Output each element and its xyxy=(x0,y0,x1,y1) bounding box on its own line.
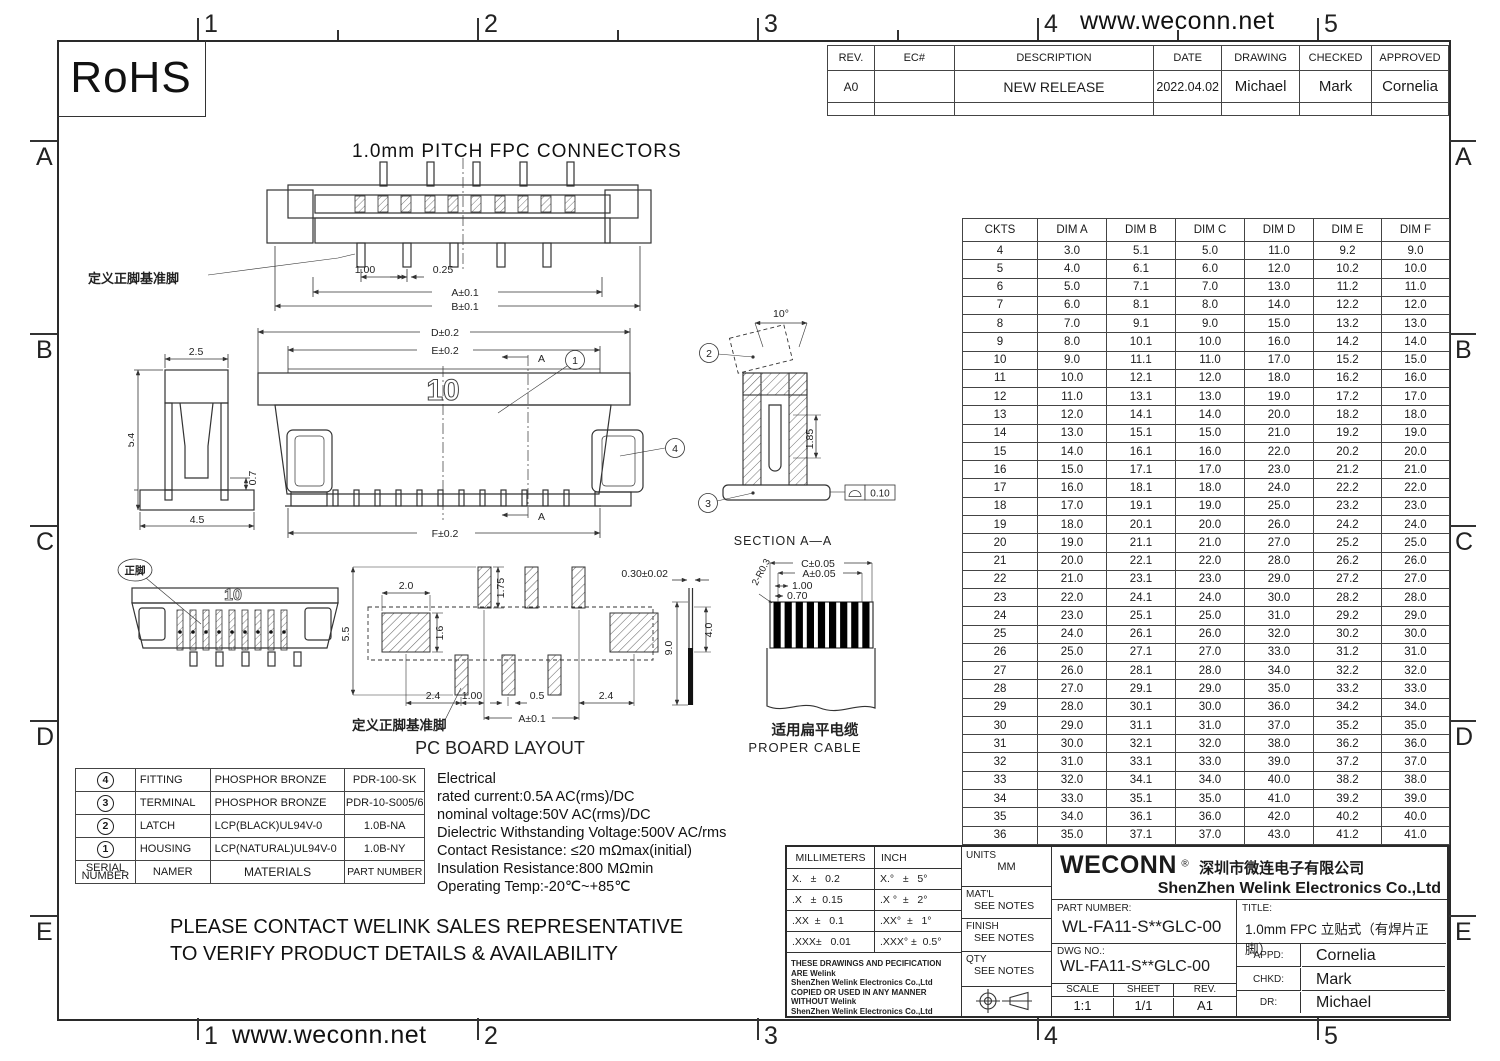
dimension-row: 12 11.0 13.1 13.0 19.0 17.2 17.0 xyxy=(963,388,1450,406)
dim-e-cell: 21.2 xyxy=(1314,461,1382,479)
section-caption: SECTION A—A xyxy=(734,534,833,548)
dim-a-cell: 23.0 xyxy=(1038,607,1107,625)
ckts-cell: 6 xyxy=(963,278,1038,296)
dim-c-cell: 12.0 xyxy=(1176,369,1245,387)
units-value: MM xyxy=(962,861,1051,873)
dim-c-cell: 33.0 xyxy=(1176,753,1245,771)
units-label: UNITS xyxy=(962,847,1051,861)
dim-e-cell: 24.2 xyxy=(1314,515,1382,533)
dim-e-cell: 27.2 xyxy=(1314,570,1382,588)
rohs-label: RoHS xyxy=(70,53,191,103)
dim-c-cell: 27.0 xyxy=(1176,643,1245,661)
ckts-cell: 5 xyxy=(963,260,1038,278)
zone-tick xyxy=(30,140,57,142)
sales-note-line1: PLEASE CONTACT WELINK SALES REPRESENTATI… xyxy=(170,914,683,941)
dim-b-cell: 8.1 xyxy=(1107,296,1176,314)
dim-a: A±0.1 xyxy=(451,287,479,299)
zone-letter-right-c: C xyxy=(1455,528,1473,557)
dim-d-cell: 37.0 xyxy=(1245,716,1314,734)
revision-table: REV.EC#DESCRIPTIONDATEDRAWINGCHECKEDAPPR… xyxy=(827,45,1449,116)
cable-caption-cn: 适用扁平电缆 xyxy=(772,721,859,739)
tolerance-inch-0: X.° ± 5° xyxy=(875,869,961,890)
side-view-dimensions xyxy=(134,354,254,530)
dim-a-cell: 20.0 xyxy=(1038,552,1107,570)
dim-a-cell: 5.0 xyxy=(1038,278,1107,296)
dim-a-cell: 18.0 xyxy=(1038,515,1107,533)
dim-f-cell: 28.0 xyxy=(1382,589,1450,607)
dimension-table: CKTSDIM ADIM BDIM CDIM DDIM EDIM F 4 3.0… xyxy=(962,218,1450,845)
chkd-value: Mark xyxy=(1302,968,1445,991)
dwg-scale-block: DWG NO.: WL-FA11-S**GLC-00 SCALE SHEET R… xyxy=(1052,944,1237,1016)
ckts-cell: 16 xyxy=(963,461,1038,479)
dim-side-width: 2.5 xyxy=(189,346,204,358)
dimension-row: 36 35.0 37.1 37.0 43.0 41.2 41.0 xyxy=(963,826,1450,845)
dim-b-cell: 27.1 xyxy=(1107,643,1176,661)
revision-header-cell: CHECKED xyxy=(1300,46,1372,71)
dimension-row: 13 12.0 14.1 14.0 20.0 18.2 18.0 xyxy=(963,406,1450,424)
sales-note: PLEASE CONTACT WELINK SALES REPRESENTATI… xyxy=(170,914,683,968)
ckts-cell: 13 xyxy=(963,406,1038,424)
flatness-value: 0.10 xyxy=(870,489,890,500)
dim-b-cell: 26.1 xyxy=(1107,625,1176,643)
zone-tick xyxy=(1449,720,1476,722)
third-angle-projection-icon xyxy=(974,988,1038,1015)
qty-cell: QTY SEE NOTES xyxy=(962,952,1051,987)
dim-c-cell: 29.0 xyxy=(1176,680,1245,698)
zone-letter-right-a: A xyxy=(1455,143,1472,172)
dr-label: DR: xyxy=(1237,992,1301,1013)
dim-e-cell: 41.2 xyxy=(1314,826,1382,845)
dim-pitch: 1.00 xyxy=(355,264,376,276)
ckts-cell: 4 xyxy=(963,242,1038,260)
dim-cable-length: 9.0 xyxy=(663,641,675,656)
dim-b-cell: 28.1 xyxy=(1107,662,1176,680)
dim-c-cell: 23.0 xyxy=(1176,570,1245,588)
dim-a-cell: 8.0 xyxy=(1038,333,1107,351)
dim-b-cell: 6.1 xyxy=(1107,260,1176,278)
dim-f-cell: 39.0 xyxy=(1382,789,1450,807)
pcb-caption: PC BOARD LAYOUT xyxy=(415,738,585,758)
material-part: 1.0B-NY xyxy=(345,838,425,861)
dim-b-cell: 36.1 xyxy=(1107,808,1176,826)
dim-e-cell: 33.2 xyxy=(1314,680,1382,698)
company-name-en: ShenZhen Welink Electronics Co.,Ltd xyxy=(1052,880,1447,898)
dim-f-cell: 32.0 xyxy=(1382,662,1450,680)
dimension-row: 32 31.0 33.1 33.0 39.0 37.2 37.0 xyxy=(963,753,1450,771)
website-url-top: www.weconn.net xyxy=(1080,7,1275,36)
dim-f-cell: 20.0 xyxy=(1382,442,1450,460)
appd-label: APPD: xyxy=(1237,944,1301,967)
dim-f-cell: 21.0 xyxy=(1382,461,1450,479)
ckts-cell: 8 xyxy=(963,315,1038,333)
revision-header-cell: REV. xyxy=(828,46,875,71)
dimension-row: 8 7.0 9.1 9.0 15.0 13.2 13.0 xyxy=(963,315,1450,333)
dim-pad-top: 1.75 xyxy=(495,578,507,599)
dimension-table-body: 4 3.0 5.1 5.0 11.0 9.2 9.0 5 4.0 6.1 6.0… xyxy=(963,242,1450,845)
dim-c-cell: 32.0 xyxy=(1176,735,1245,753)
dim-b-cell: 31.1 xyxy=(1107,716,1176,734)
dim-pcb-height: 5.5 xyxy=(340,627,352,642)
dim-c-cell: 24.0 xyxy=(1176,589,1245,607)
dim-a-cell: 24.0 xyxy=(1038,625,1107,643)
ckts-cell: 19 xyxy=(963,515,1038,533)
dim-d-cell: 29.0 xyxy=(1245,570,1314,588)
dim-b-cell: 32.1 xyxy=(1107,735,1176,753)
electrical-line: Insulation Resistance:800 MΩmin xyxy=(437,860,726,878)
dim-b: B±0.1 xyxy=(451,301,479,313)
dim-c-cell: 36.0 xyxy=(1176,808,1245,826)
dim-e-cell: 28.2 xyxy=(1314,589,1382,607)
ckts-cell: 17 xyxy=(963,479,1038,497)
dimension-row: 21 20.0 22.1 22.0 28.0 26.2 26.0 xyxy=(963,552,1450,570)
ckts-cell: 11 xyxy=(963,369,1038,387)
title-block: MILLIMETERS INCH X. ± 0.2 X.° ± 5° .X ± … xyxy=(785,845,1449,1018)
dimension-header-cell: CKTS xyxy=(963,219,1038,242)
dim-b-cell: 23.1 xyxy=(1107,570,1176,588)
ec-value xyxy=(874,71,954,103)
dimension-row: 33 32.0 34.1 34.0 40.0 38.2 38.0 xyxy=(963,771,1450,789)
dim-d-cell: 13.0 xyxy=(1245,278,1314,296)
dim-a-cell: 19.0 xyxy=(1038,534,1107,552)
date-value: 2022.04.02 xyxy=(1154,71,1222,103)
view-top-elevation: 1.00 0.25 A±0.1 B±0.1 定义正脚基准脚 xyxy=(80,158,680,320)
dim-d-cell: 43.0 xyxy=(1245,826,1314,845)
dim-b-cell: 24.1 xyxy=(1107,589,1176,607)
dim-d-cell: 12.0 xyxy=(1245,260,1314,278)
dimension-row: 28 27.0 29.1 29.0 35.0 33.2 33.0 xyxy=(963,680,1450,698)
revision-header-cell: APPROVED xyxy=(1372,46,1449,71)
dim-exposure: 4.0 xyxy=(703,623,715,638)
ckts-cell: 25 xyxy=(963,625,1038,643)
dimension-row: 30 29.0 31.1 31.0 37.0 35.2 35.0 xyxy=(963,716,1450,734)
dimension-row: 11 10.0 12.1 12.0 18.0 16.2 16.0 xyxy=(963,369,1450,387)
tolerance-mm-3: .XXX± 0.01 xyxy=(787,932,875,953)
zone-number-bottom-4: 4 xyxy=(1044,1022,1058,1051)
dim-left-span: 2.4 xyxy=(426,690,441,702)
dim-b-cell: 29.1 xyxy=(1107,680,1176,698)
material-name: FITTING xyxy=(135,769,210,792)
zone-tick xyxy=(1449,333,1476,335)
dim-cable-a: A±0.05 xyxy=(802,568,835,580)
dimension-row: 19 18.0 20.1 20.0 26.0 24.2 24.0 xyxy=(963,515,1450,533)
dim-d-cell: 38.0 xyxy=(1245,735,1314,753)
dwg-no-label: DWG NO.: xyxy=(1052,944,1236,957)
dim-a-cell: 30.0 xyxy=(1038,735,1107,753)
zone-tick xyxy=(1449,140,1476,142)
dim-a-cell: 28.0 xyxy=(1038,698,1107,716)
dim-c-cell: 9.0 xyxy=(1176,315,1245,333)
sheet-label: SHEET xyxy=(1114,983,1174,997)
dim-c-cell: 13.0 xyxy=(1176,388,1245,406)
description-value: NEW RELEASE xyxy=(954,71,1154,103)
zone-halftick xyxy=(617,30,619,40)
zone-tick xyxy=(1317,18,1319,40)
dim-a-cell: 35.0 xyxy=(1038,826,1107,845)
scale-label: SCALE xyxy=(1052,983,1114,997)
connector-top-outline xyxy=(267,162,651,267)
ckts-cell: 23 xyxy=(963,589,1038,607)
ckts-cell: 29 xyxy=(963,698,1038,716)
dim-c-cell: 21.0 xyxy=(1176,534,1245,552)
dim-b-cell: 7.1 xyxy=(1107,278,1176,296)
dim-e-cell: 15.2 xyxy=(1314,351,1382,369)
dim-c-cell: 5.0 xyxy=(1176,242,1245,260)
zone-tick xyxy=(197,1018,199,1040)
dimension-row: 23 22.0 24.1 24.0 30.0 28.2 28.0 xyxy=(963,589,1450,607)
materials-table: 4 FITTING PHOSPHOR BRONZE PDR-100-SK 3 T… xyxy=(75,768,425,884)
dim-f-cell: 40.0 xyxy=(1382,808,1450,826)
dim-a-cell: 25.0 xyxy=(1038,643,1107,661)
dim-c-cell: 14.0 xyxy=(1176,406,1245,424)
approved-value: Cornelia xyxy=(1372,71,1449,103)
dim-b-cell: 10.1 xyxy=(1107,333,1176,351)
dim-d-cell: 32.0 xyxy=(1245,625,1314,643)
tolerance-header-mm: MILLIMETERS xyxy=(787,847,875,869)
view-iso: 10 正脚 xyxy=(113,548,368,738)
dimension-row: 5 4.0 6.1 6.0 12.0 10.2 10.0 xyxy=(963,260,1450,278)
dim-e-cell: 29.2 xyxy=(1314,607,1382,625)
dim-f-cell: 24.0 xyxy=(1382,515,1450,533)
zone-tick xyxy=(1037,18,1039,40)
dim-d: D±0.2 xyxy=(431,327,459,339)
dim-f-cell: 15.0 xyxy=(1382,351,1450,369)
company-panel: WECONN ® 深圳市微连电子有限公司 ShenZhen Welink Ele… xyxy=(1052,847,1447,1016)
svg-text:4: 4 xyxy=(672,443,678,455)
material-row-terminal: 3 TERMINAL PHOSPHOR BRONZE PDR-10-S005/6 xyxy=(76,792,425,815)
dim-c-cell: 7.0 xyxy=(1176,278,1245,296)
dim-b-cell: 33.1 xyxy=(1107,753,1176,771)
dim-e-cell: 17.2 xyxy=(1314,388,1382,406)
dim-a-cell: 9.0 xyxy=(1038,351,1107,369)
material-row-latch: 2 LATCH LCP(BLACK)UL94V-0 1.0B-NA xyxy=(76,815,425,838)
rev-value: A0 xyxy=(828,71,875,103)
dim-pad-width: 2.0 xyxy=(399,580,414,592)
dimension-row: 25 24.0 26.1 26.0 32.0 30.2 30.0 xyxy=(963,625,1450,643)
dim-d-cell: 27.0 xyxy=(1245,534,1314,552)
dim-b-cell: 12.1 xyxy=(1107,369,1176,387)
dim-d-cell: 42.0 xyxy=(1245,808,1314,826)
tolerance-mm-1: .X ± 0.15 xyxy=(787,890,875,911)
svg-text:3: 3 xyxy=(705,498,711,510)
legal-text: THESE DRAWINGS AND PECIFICATION ARE Weli… xyxy=(791,959,959,1016)
material-row-fitting: 4 FITTING PHOSPHOR BRONZE PDR-100-SK xyxy=(76,769,425,792)
dim-c-cell: 37.0 xyxy=(1176,826,1245,845)
finish-value: SEE NOTES xyxy=(962,932,1051,944)
dim-f-cell: 38.0 xyxy=(1382,771,1450,789)
dim-c-cell: 25.0 xyxy=(1176,607,1245,625)
ckts-cell: 22 xyxy=(963,570,1038,588)
ckts-cell: 20 xyxy=(963,534,1038,552)
dim-a-cell: 6.0 xyxy=(1038,296,1107,314)
dim-e-cell: 14.2 xyxy=(1314,333,1382,351)
electrical-line: Contact Resistance: ≤20 mΩmax(initial) xyxy=(437,842,726,860)
dimension-row: 34 33.0 35.1 35.0 41.0 39.2 39.0 xyxy=(963,789,1450,807)
dim-a-cell: 21.0 xyxy=(1038,570,1107,588)
zone-number-top-1: 1 xyxy=(204,10,218,39)
serial-badge: 2 xyxy=(97,818,114,835)
dim-f-cell: 29.0 xyxy=(1382,607,1450,625)
ckts-cell: 26 xyxy=(963,643,1038,661)
dim-c-cell: 11.0 xyxy=(1176,351,1245,369)
dim-b-cell: 34.1 xyxy=(1107,771,1176,789)
zone-letter-left-c: C xyxy=(36,528,54,557)
dim-e-cell: 30.2 xyxy=(1314,625,1382,643)
cable-conductors xyxy=(774,602,870,648)
zone-tick xyxy=(30,915,57,917)
zone-number-bottom-5: 5 xyxy=(1324,1022,1338,1051)
dim-f-cell: 18.0 xyxy=(1382,406,1450,424)
dimension-header-cell: DIM C xyxy=(1176,219,1245,242)
qty-label: QTY xyxy=(962,952,1051,965)
dim-c-cell: 18.0 xyxy=(1176,479,1245,497)
dim-a-cell: 29.0 xyxy=(1038,716,1107,734)
serial-header-line2: NUMBER xyxy=(76,872,135,880)
revision-row: A0 NEW RELEASE 2022.04.02 Michael Mark C… xyxy=(828,71,1449,103)
side-profile-outline xyxy=(140,370,254,510)
electrical-specs: Electrical rated current:0.5A AC(rms)/DC… xyxy=(437,770,726,896)
tolerance-inch-2: .XX° ± 1° xyxy=(875,911,961,932)
dimension-header-row: CKTSDIM ADIM BDIM CDIM DDIM EDIM F xyxy=(963,219,1450,242)
tolerance-mm-2: .XX ± 0.1 xyxy=(787,911,875,932)
dim-e-cell: 39.2 xyxy=(1314,789,1382,807)
svg-text:1: 1 xyxy=(572,355,578,367)
dim-a-cell: 34.0 xyxy=(1038,808,1107,826)
dim-d-cell: 39.0 xyxy=(1245,753,1314,771)
dim-right-span: 2.4 xyxy=(599,690,614,702)
dim-c-cell: 20.0 xyxy=(1176,515,1245,533)
dim-e-cell: 26.2 xyxy=(1314,552,1382,570)
zone-number-top-4: 4 xyxy=(1044,10,1058,39)
zone-halftick xyxy=(337,30,339,40)
dimension-row: 15 14.0 16.1 16.0 22.0 20.2 20.0 xyxy=(963,442,1450,460)
dim-f-cell: 31.0 xyxy=(1382,643,1450,661)
dim-side-height: 5.4 xyxy=(128,433,137,448)
balloon-latch: 2 xyxy=(700,344,755,363)
dim-f-cell: 11.0 xyxy=(1382,278,1450,296)
balloon-fitting: 4 xyxy=(620,439,685,458)
electrical-line: Dielectric Withstanding Voltage:500V AC/… xyxy=(437,824,726,842)
drawing-sheet: 1 2 3 4 5 www.weconn.net 1 2 3 4 5 www.w… xyxy=(0,0,1500,1061)
dim-b-cell: 5.1 xyxy=(1107,242,1176,260)
dim-c-cell: 19.0 xyxy=(1176,497,1245,515)
dim-e-cell: 22.2 xyxy=(1314,479,1382,497)
dim-a-cell: 32.0 xyxy=(1038,771,1107,789)
dim-b-cell: 13.1 xyxy=(1107,388,1176,406)
dim-a-cell: 15.0 xyxy=(1038,461,1107,479)
dimension-header-cell: DIM F xyxy=(1382,219,1450,242)
dim-b-cell: 15.1 xyxy=(1107,424,1176,442)
ckts-cell: 9 xyxy=(963,333,1038,351)
zone-letter-right-d: D xyxy=(1455,723,1473,752)
material-spec: LCP(BLACK)UL94V-0 xyxy=(210,815,345,838)
tolerance-inch-3: .XXX° ± 0.5° xyxy=(875,932,961,953)
positive-pin-balloon: 正脚 xyxy=(118,559,201,624)
dim-a-cell: 12.0 xyxy=(1038,406,1107,424)
dim-f-cell: 17.0 xyxy=(1382,388,1450,406)
tolerance-panel: MILLIMETERS INCH X. ± 0.2 X.° ± 5° .X ± … xyxy=(787,847,962,1016)
ckts-cell: 32 xyxy=(963,753,1038,771)
part-number-header: PART NUMBER xyxy=(345,861,425,884)
svg-text:2: 2 xyxy=(706,348,712,360)
dim-a-cell: 13.0 xyxy=(1038,424,1107,442)
dim-a-cell: 10.0 xyxy=(1038,369,1107,387)
ckts-cell: 34 xyxy=(963,789,1038,807)
dim-d-cell: 21.0 xyxy=(1245,424,1314,442)
dim-e-cell: 10.2 xyxy=(1314,260,1382,278)
part-number-value: WL-FA11-S**GLC-00 xyxy=(1052,914,1236,937)
zone-number-top-5: 5 xyxy=(1324,10,1338,39)
zone-number-bottom-2: 2 xyxy=(484,1022,498,1051)
ckts-cell: 36 xyxy=(963,826,1038,845)
dimension-row: 4 3.0 5.1 5.0 11.0 9.2 9.0 xyxy=(963,242,1450,260)
company-name-cn: 深圳市微连电子有限公司 xyxy=(1193,860,1364,877)
drawing-value: Michael xyxy=(1222,71,1300,103)
top-view-dimensions xyxy=(208,246,640,311)
ckts-cell: 35 xyxy=(963,808,1038,826)
material-part: PDR-10-S005/6 xyxy=(345,792,425,815)
rohs-badge: RoHS xyxy=(57,40,206,117)
zone-number-top-3: 3 xyxy=(764,10,778,39)
ckts-cell: 21 xyxy=(963,552,1038,570)
dim-side-base: 4.5 xyxy=(190,514,205,526)
cable-body xyxy=(767,602,875,711)
dimension-row: 14 13.0 15.1 15.0 21.0 19.2 19.0 xyxy=(963,424,1450,442)
dim-a-cell: 31.0 xyxy=(1038,753,1107,771)
materials-footer-row: SERIAL NUMBER NAMER MATERIALS PART NUMBE… xyxy=(76,861,425,884)
balloon-terminal: 3 xyxy=(699,491,755,512)
cable-caption-en: PROPER CABLE xyxy=(748,740,861,755)
dim-c-cell: 8.0 xyxy=(1176,296,1245,314)
dim-d-cell: 35.0 xyxy=(1245,680,1314,698)
dim-f-cell: 22.0 xyxy=(1382,479,1450,497)
dim-d-cell: 33.0 xyxy=(1245,643,1314,661)
ckts-cell: 30 xyxy=(963,716,1038,734)
dimension-row: 9 8.0 10.1 10.0 16.0 14.2 14.0 xyxy=(963,333,1450,351)
dim-e-cell: 19.2 xyxy=(1314,424,1382,442)
dimension-row: 20 19.0 21.1 21.0 27.0 25.2 25.0 xyxy=(963,534,1450,552)
dim-c-cell: 30.0 xyxy=(1176,698,1245,716)
dim-e-cell: 11.2 xyxy=(1314,278,1382,296)
projection-cell xyxy=(962,987,1051,1016)
finish-label: FINISH xyxy=(962,919,1051,932)
serial-badge: 3 xyxy=(97,795,114,812)
dim-b-cell: 22.1 xyxy=(1107,552,1176,570)
latch-open-position xyxy=(729,325,792,373)
material-name: LATCH xyxy=(135,815,210,838)
zone-tick xyxy=(1449,525,1476,527)
dim-b-cell: 30.1 xyxy=(1107,698,1176,716)
material-part: 1.0B-NA xyxy=(345,815,425,838)
dim-f-cell: 27.0 xyxy=(1382,570,1450,588)
dim-c-cell: 31.0 xyxy=(1176,716,1245,734)
dimension-row: 35 34.0 36.1 36.0 42.0 40.2 40.0 xyxy=(963,808,1450,826)
circuit-count-marking: 10 xyxy=(426,374,459,407)
revision-header-cell: EC# xyxy=(874,46,954,71)
zone-letter-left-b: B xyxy=(36,336,53,365)
dimension-row: 29 28.0 30.1 30.0 36.0 34.2 34.0 xyxy=(963,698,1450,716)
ckts-cell: 14 xyxy=(963,424,1038,442)
dim-f-cell: 41.0 xyxy=(1382,826,1450,845)
dim-d-cell: 18.0 xyxy=(1245,369,1314,387)
dimension-row: 6 5.0 7.1 7.0 13.0 11.2 11.0 xyxy=(963,278,1450,296)
dim-e-cell: 13.2 xyxy=(1314,315,1382,333)
dim-e-cell: 20.2 xyxy=(1314,442,1382,460)
dim-a-cell: 26.0 xyxy=(1038,662,1107,680)
dimension-header-cell: DIM A xyxy=(1038,219,1107,242)
dim-f-cell: 30.0 xyxy=(1382,625,1450,643)
zone-number-top-2: 2 xyxy=(484,10,498,39)
dim-angle: 10° xyxy=(773,308,789,320)
